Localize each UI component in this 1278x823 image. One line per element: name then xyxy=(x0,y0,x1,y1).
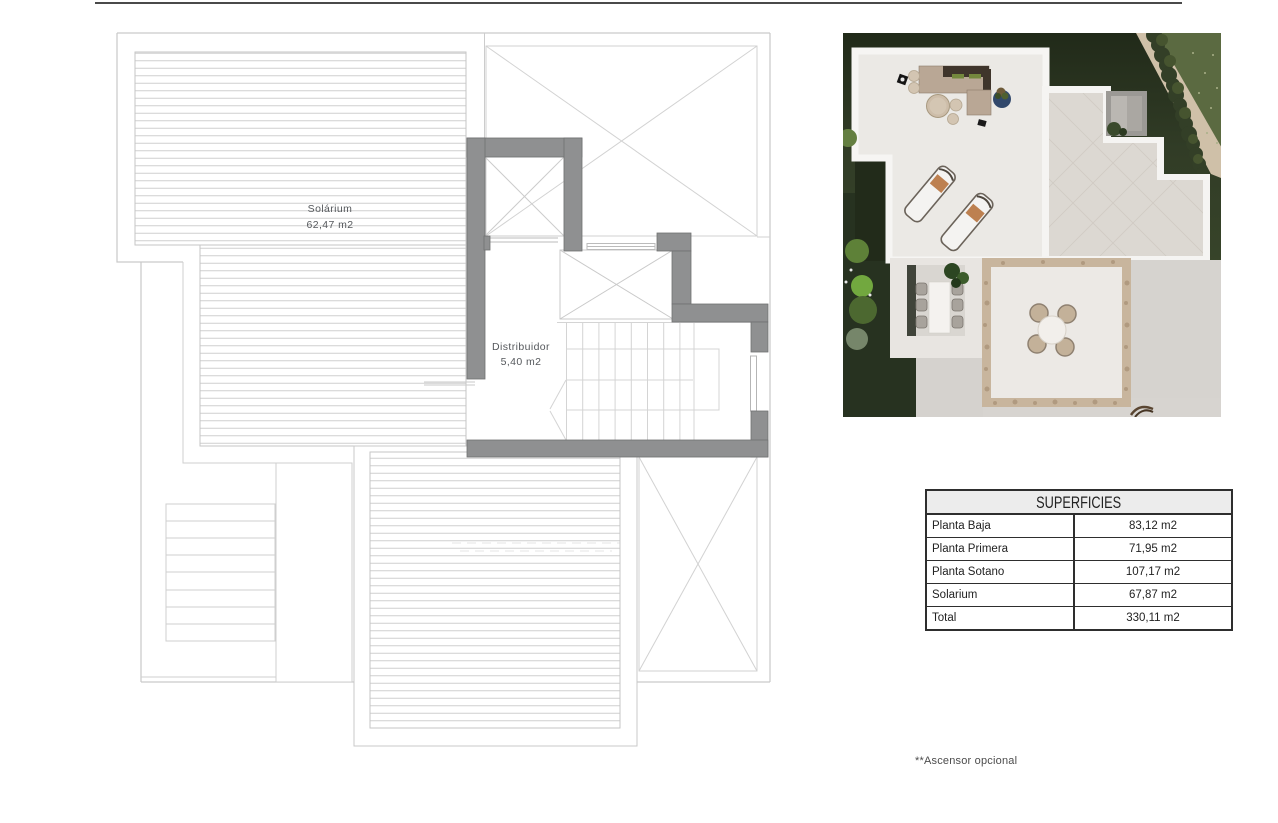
svg-text:62,47 m2: 62,47 m2 xyxy=(307,219,354,231)
svg-text:Solárium: Solárium xyxy=(308,203,353,215)
svg-text:5,40 m2: 5,40 m2 xyxy=(501,356,542,368)
svg-text:Distribuidor: Distribuidor xyxy=(492,341,550,353)
